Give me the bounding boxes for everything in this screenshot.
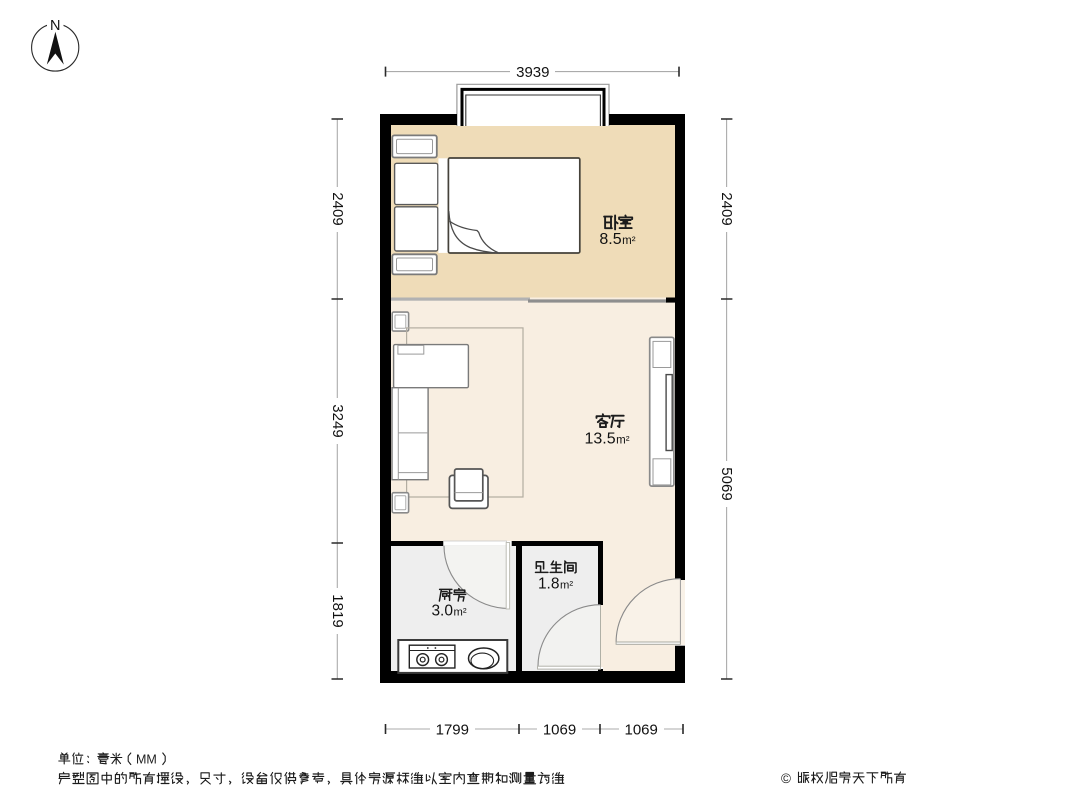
svg-text:3939: 3939 (516, 64, 549, 81)
svg-text:2409: 2409 (718, 192, 735, 225)
svg-text:MM: MM (136, 753, 157, 767)
svg-text:2409: 2409 (329, 192, 346, 225)
svg-text:3249: 3249 (329, 404, 346, 437)
svg-text:1799: 1799 (436, 722, 469, 739)
svg-text:1069: 1069 (543, 722, 576, 739)
svg-text:1819: 1819 (329, 594, 346, 627)
svg-text:5069: 5069 (718, 467, 735, 500)
svg-text:N: N (50, 18, 60, 34)
svg-text:©: © (781, 771, 791, 786)
svg-text:1069: 1069 (625, 722, 658, 739)
